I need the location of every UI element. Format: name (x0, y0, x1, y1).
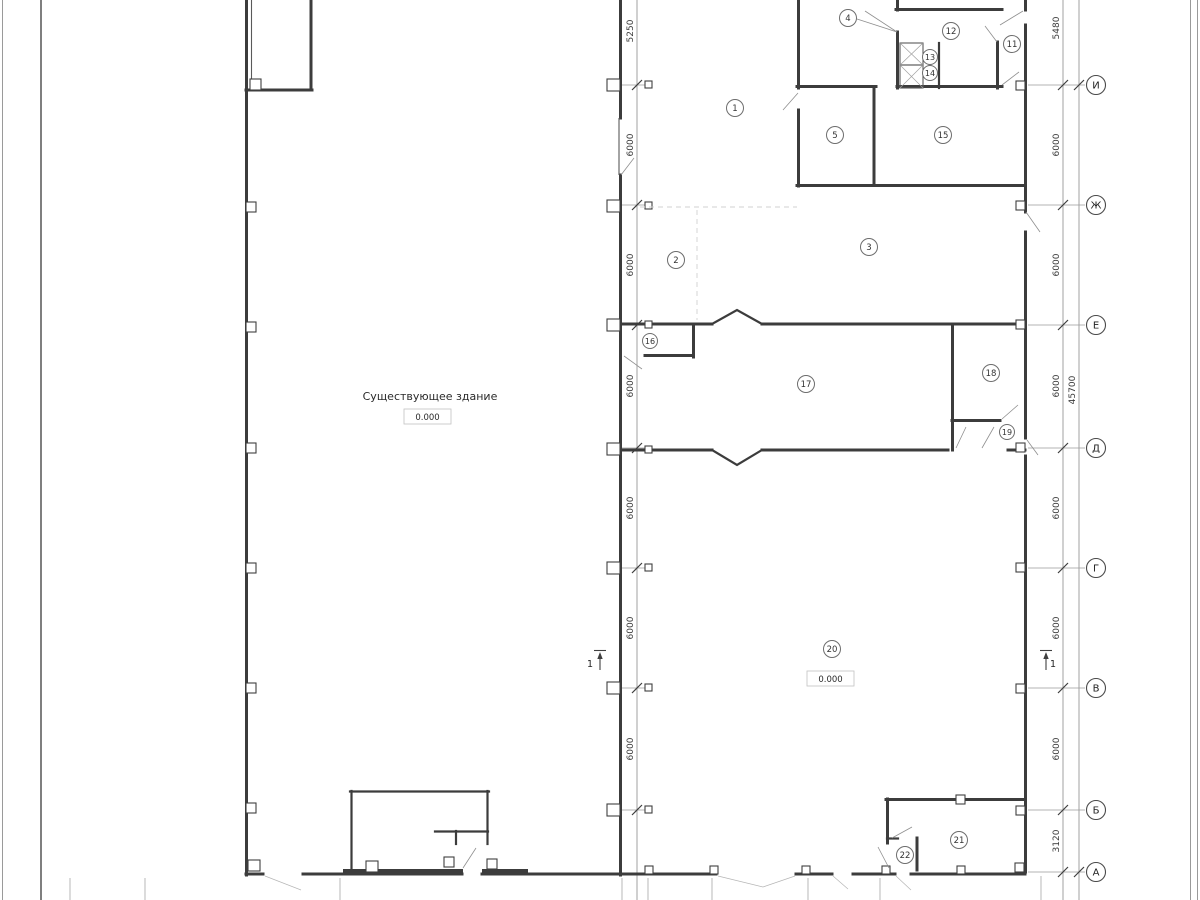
svg-text:17: 17 (801, 380, 812, 390)
svg-text:18: 18 (986, 369, 997, 379)
room-marker: 13 (923, 50, 938, 65)
interior-walls (343, 0, 1025, 875)
room-marker: 15 (935, 127, 952, 144)
axis-label: Ж (1091, 201, 1102, 212)
axis-label: И (1092, 81, 1099, 92)
room-marker: 22 (897, 847, 914, 864)
elevation-mark: 0.000 (415, 413, 439, 423)
svg-text:15: 15 (938, 131, 949, 141)
dim-left-6000: 6000 (626, 133, 636, 156)
building-label-group: Существующее здание 0.000 0.000 (363, 390, 854, 686)
dim-left-6000: 6000 (626, 496, 636, 519)
dim-right-3120: 3120 (1052, 829, 1062, 852)
dim-right-6000: 6000 (1052, 496, 1062, 519)
svg-text:1: 1 (732, 104, 737, 114)
dim-right-6000: 6000 (1052, 133, 1062, 156)
zone-dashes (640, 207, 797, 320)
dim-total-45700: 45700 (1068, 375, 1078, 404)
svg-text:1: 1 (1050, 659, 1056, 670)
svg-text:11: 11 (1007, 40, 1018, 50)
dim-right-6000: 6000 (1052, 616, 1062, 639)
dim-right-6000: 6000 (1052, 737, 1062, 760)
svg-text:16: 16 (645, 337, 655, 346)
room-marker: 5 (827, 127, 844, 144)
room-marker: 1 (727, 100, 744, 117)
axis-label: В (1093, 684, 1100, 695)
room-marker: 11 (1004, 36, 1021, 53)
dim-right-6000: 6000 (1052, 374, 1062, 397)
room-marker: 2 (668, 252, 685, 269)
svg-text:20: 20 (827, 645, 838, 655)
svg-text:12: 12 (946, 27, 957, 37)
dim-left-5250: 5250 (626, 19, 636, 42)
svg-text:19: 19 (1002, 428, 1012, 437)
room-marker: 19 (1000, 425, 1015, 440)
svg-text:4: 4 (845, 14, 850, 24)
axis-label: Г (1093, 564, 1099, 575)
axis-label: А (1093, 868, 1100, 879)
room-marker: 20 (824, 641, 841, 658)
section-mark-right: 1 (1040, 651, 1056, 671)
axis-label: Б (1093, 806, 1100, 817)
room-marker: 12 (943, 23, 960, 40)
room-marker: 14 (923, 66, 938, 81)
room-marker: 3 (861, 239, 878, 256)
room-marker: 4 (840, 10, 857, 27)
elevation-mark: 0.000 (818, 675, 842, 685)
dim-left-6000: 6000 (626, 253, 636, 276)
dim-left-6000: 6000 (626, 737, 636, 760)
svg-text:2: 2 (673, 256, 678, 266)
room-marker: 21 (951, 832, 968, 849)
section-marks: 1 1 (587, 651, 1056, 671)
dim-left-6000: 6000 (626, 616, 636, 639)
room-marker: 17 (798, 376, 815, 393)
svg-text:5: 5 (832, 131, 837, 141)
dim-right-5480: 5480 (1052, 16, 1062, 39)
svg-text:14: 14 (925, 69, 935, 78)
dim-left-6000: 6000 (626, 374, 636, 397)
floor-plan-drawing: 5250 6000 6000 6000 6000 6000 6000 5480 … (0, 0, 1200, 900)
room-marker: 18 (983, 365, 1000, 382)
svg-text:3: 3 (866, 243, 871, 253)
svg-text:22: 22 (900, 851, 911, 861)
room-marker: 16 (643, 334, 658, 349)
dim-right-6000: 6000 (1052, 253, 1062, 276)
shaft-boxes (900, 43, 923, 88)
svg-text:1: 1 (587, 659, 593, 670)
svg-text:13: 13 (925, 53, 935, 62)
axis-label: Е (1093, 321, 1099, 332)
axis-bubbles: И Ж Е Д Г В Б А (1087, 76, 1106, 882)
section-mark-left: 1 (587, 651, 606, 671)
room-markers: 1 2 3 4 5 11 12 13 14 15 16 17 18 19 20 … (643, 10, 1021, 864)
svg-text:21: 21 (954, 836, 965, 846)
building-label: Существующее здание (363, 390, 498, 403)
axis-label: Д (1092, 444, 1100, 455)
